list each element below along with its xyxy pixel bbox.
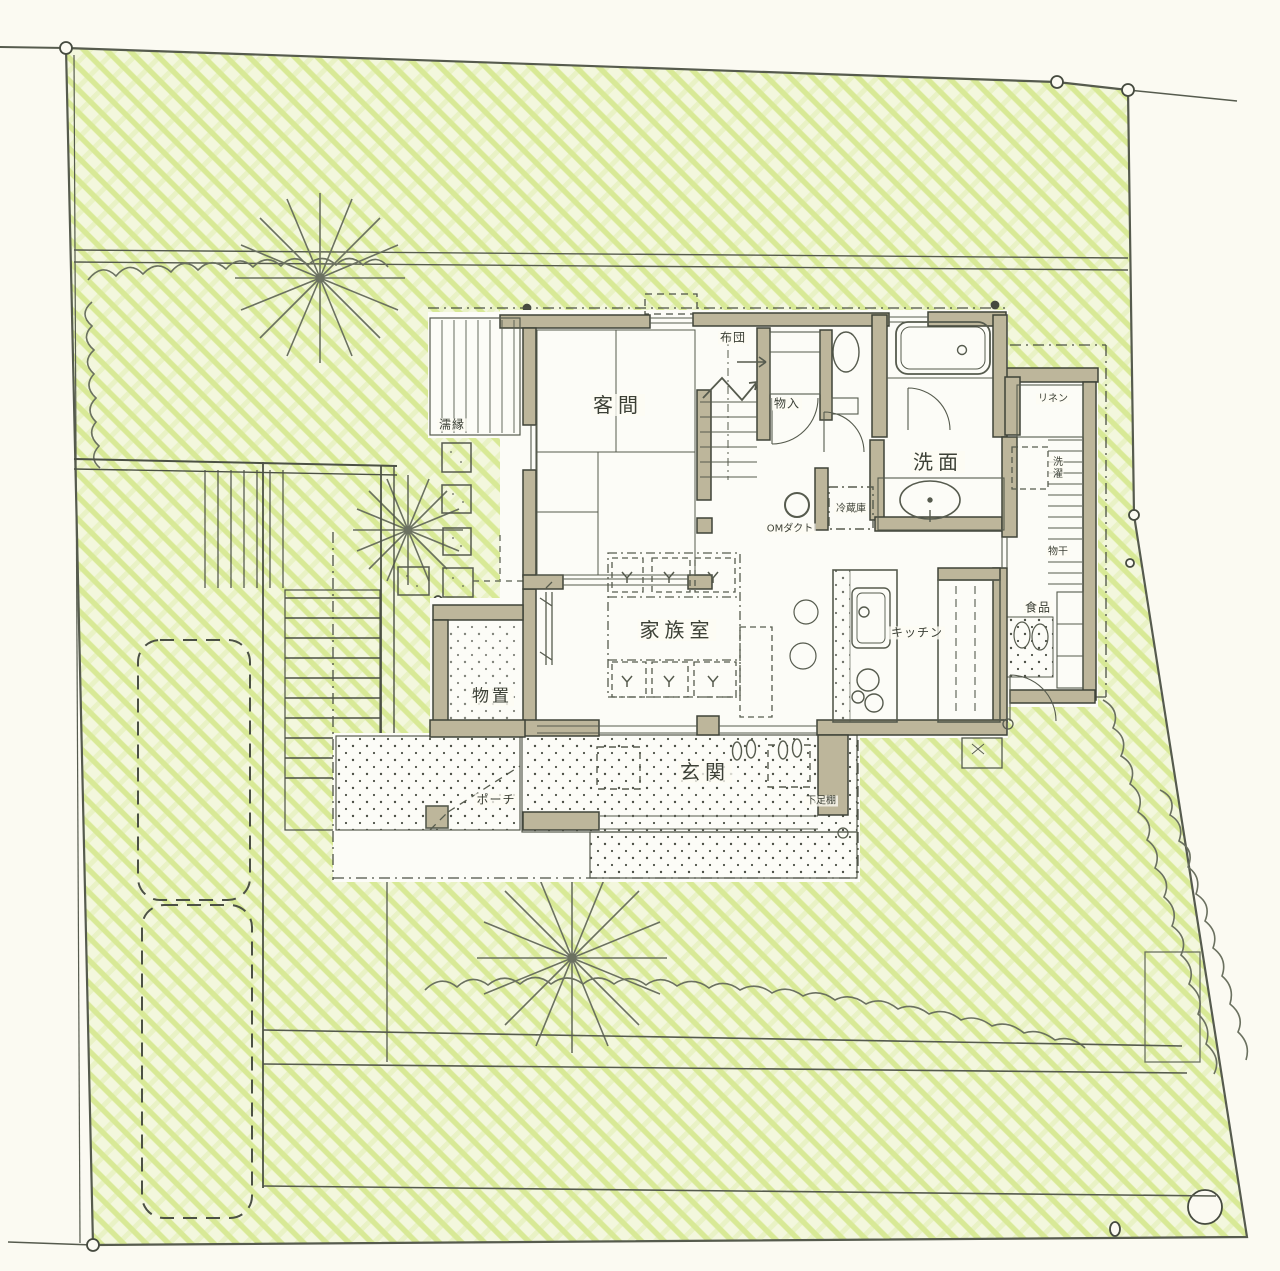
label-porch: ポーチ: [474, 793, 517, 806]
pantry-landing: [1007, 617, 1053, 677]
label-guest-room: 客間: [591, 394, 645, 416]
label-kitchen: キッチン: [889, 626, 945, 639]
label-laundry: 洗濯: [1049, 456, 1064, 480]
site-plan-page: 濡縁 客間 布団 物入 洗面 リネン 洗濯 物干 食品 冷蔵庫 OMダクト 家族…: [0, 0, 1280, 1271]
label-pantry: 食品: [1023, 601, 1053, 614]
label-refrigerator: 冷蔵庫: [834, 504, 868, 515]
label-futon: 布団: [718, 331, 748, 344]
storage-floor: [444, 622, 518, 728]
label-linen: リネン: [1036, 394, 1070, 405]
duct-column: [697, 518, 712, 533]
porch-stone: [426, 806, 448, 828]
label-washroom: 洗面: [911, 451, 965, 473]
label-closet: 物入: [772, 397, 802, 410]
label-drying: 物干: [1046, 547, 1070, 558]
label-shoe-rack: 下足棚: [804, 796, 838, 807]
label-family-room: 家族室: [638, 619, 717, 641]
label-entrance: 玄関: [678, 761, 732, 783]
label-om-duct: OMダクト: [765, 524, 816, 535]
entrance-step-slab: [590, 832, 857, 878]
label-veranda: 濡縁: [437, 418, 467, 431]
label-storage: 物置: [470, 688, 514, 707]
